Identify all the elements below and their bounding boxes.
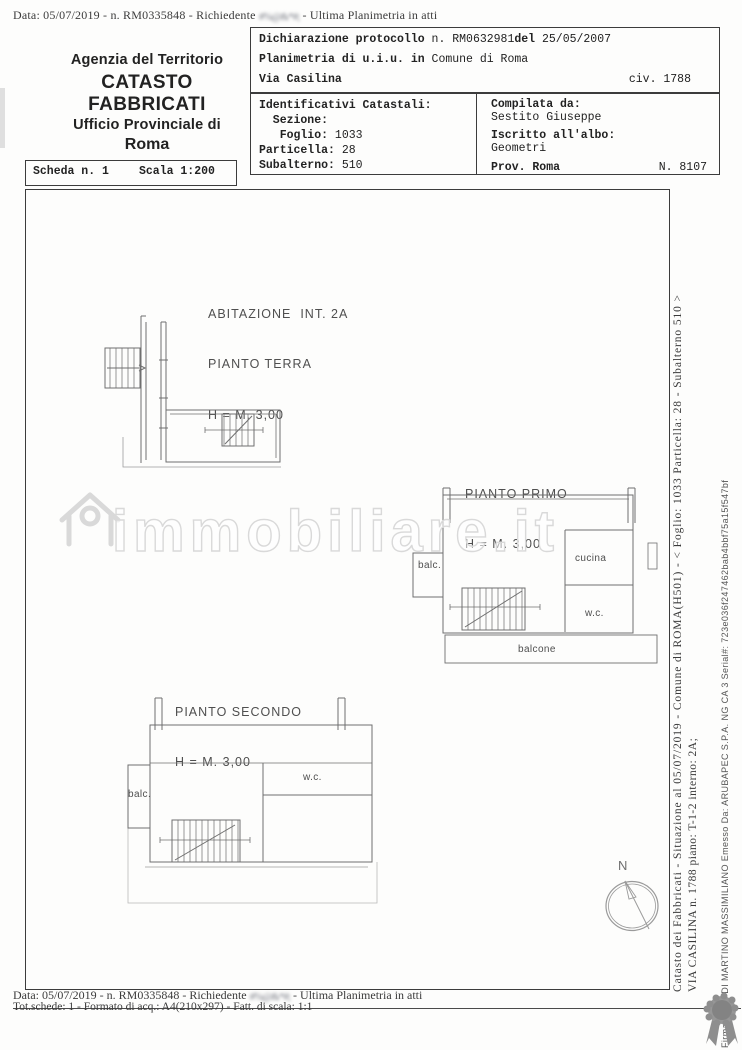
request-header-line: Data: 05/07/2019 - n. RM0335848 - Richie… [13,8,437,23]
room-cucina: cucina [575,553,606,564]
room-wc-secondo: w.c. [303,772,322,783]
particella-row: Particella: 28 [259,143,432,158]
compass-rose [600,875,666,935]
margin-signature-line: Firmato Da: DI MARTINO MASSIMILIANO Emes… [720,480,730,1048]
office-line: Ufficio Provinciale di [42,117,252,134]
margin-catasto-line: Catasto dei Fabbricati - Situazione al 0… [672,294,684,992]
box-divider [476,94,477,174]
agency-header: Agenzia del Territorio CATASTO FABBRICAT… [42,52,252,154]
wall-inner-double [159,322,168,460]
foglio-row: Foglio: 1033 [259,128,432,143]
scan-artifact [0,88,5,148]
scheda-number: Scheda n. 1 [33,165,109,178]
compiler-label: Compilata da: [491,98,711,111]
wall-pillar-right [628,488,635,523]
identifiers-box: Identificativi Catastali: Sezione: Fogli… [250,93,720,175]
wall-left-double [141,316,146,463]
window-mark [648,543,657,569]
room-wc-primo: w.c. [585,608,604,619]
agency-name: Agenzia del Territorio [42,52,252,69]
declaration-box: Dichiarazione protocollo n. RM0632981del… [250,27,720,93]
subalterno-label: Subalterno: [259,159,335,172]
signature-seal-icon [702,992,742,1050]
planimetria-row: Planimetria di u.i.u. in Comune di Roma [259,53,528,66]
terrace-boundary [128,765,377,903]
compass-north-label: N [618,858,627,873]
room-balc-primo: balc. [418,560,441,571]
declaration-date: 25/05/2007 [542,33,611,46]
compiler-column: Compilata da: Sestito Giuseppe Iscritto … [491,98,711,174]
foglio-label: Foglio: [259,129,328,142]
room-balcone: balcone [518,644,556,655]
planimetria-comune: Comune di Roma [432,53,529,66]
subalterno-row: Subalterno: 510 [259,158,432,173]
scala-value: Scala 1:200 [139,165,215,178]
footer-format-line: Tot.schede: 1 - Formato di acq.: A4(210x… [13,1001,312,1013]
prov-label: Prov. Roma [491,161,560,174]
albo-value: Geometri [491,142,711,155]
room-balc-secondo: balc. [128,789,151,800]
particella-value: 28 [342,144,356,157]
particella-label: Particella: [259,144,335,157]
albo-label: Iscritto all'albo: [491,129,711,142]
foglio-value: 1033 [335,129,363,142]
catasto-title: CATASTO FABBRICATI [42,72,252,116]
request-header-prefix: Data: 05/07/2019 - n. RM0335848 - Richie… [13,8,256,22]
sezione-row: Sezione: [259,113,432,128]
identifiers-title: Identificativi Catastali: [259,98,432,113]
scheda-box: Scheda n. 1 Scala 1:200 [25,160,237,186]
margin-address-line: VIA CASILINA n. 1788 piano: T-1-2 intern… [687,738,699,992]
albo-number: N. 8107 [659,161,707,174]
request-header-suffix: - Ultima Planimetria in atti [302,8,437,22]
plan-secondo-drawing [115,695,385,910]
compiler-name: Sestito Giuseppe [491,111,711,124]
plan-terra-drawing [95,310,290,470]
watermark-text: immobiliare.it [112,498,559,565]
identifiers-column: Identificativi Catastali: Sezione: Fogli… [259,98,432,173]
prov-row: Prov. Roma N. 8107 [491,161,711,174]
civic-number: civ. 1788 [629,73,691,86]
street-name: Via Casilina [259,73,342,86]
declaration-del: del [514,33,535,46]
footer-request-suffix: - Ultima Planimetria in atti [293,988,422,1002]
declaration-label: Dichiarazione protocollo [259,33,425,46]
planimetria-label: Planimetria di u.i.u. in [259,53,425,66]
declaration-protocol-row: Dichiarazione protocollo n. RM0632981del… [259,33,611,46]
document-page: Data: 05/07/2019 - n. RM0335848 - Richie… [0,0,742,1050]
declaration-number: n. RM0632981 [432,33,515,46]
office-city: Roma [42,136,252,154]
footer-request-prefix: Data: 05/07/2019 - n. RM0335848 - Richie… [13,988,247,1002]
subalterno-value: 510 [342,159,363,172]
redacted-requester-stamp: #%@&*#; [259,11,299,23]
